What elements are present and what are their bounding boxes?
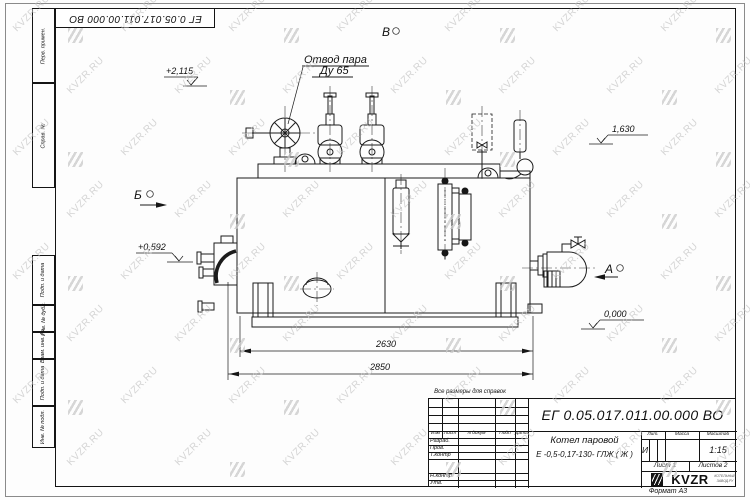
product-name-line2: Е -0,5-0,17-130- ГЛЖ ( Ж )	[528, 448, 641, 461]
reference-note: Все размеры для справок	[425, 389, 515, 395]
kvzr-logo-icon	[651, 473, 663, 486]
sheet-cell: Лист 1	[641, 461, 689, 471]
margin-box-label: Подп. и дата	[41, 365, 47, 399]
scale-label: Масштаб	[699, 432, 737, 439]
margin-box-vzam-inv: Взам. инв. №	[32, 332, 55, 359]
lit-value: И	[641, 440, 649, 460]
row-prov: Пров.	[430, 446, 458, 452]
col-data: Дата	[515, 431, 528, 438]
row-nkontr: Н.контр	[430, 474, 458, 480]
sheets-cell: Листов 2	[689, 461, 737, 471]
title-block: Изм Лист N докум Подп Дата Разраб. Пров.…	[428, 398, 736, 487]
margin-box-perv-primen: Перв. примен.	[32, 8, 55, 83]
row-razrab: Разраб.	[430, 439, 458, 445]
margin-box-podp-data-2: Подп. и дата	[32, 359, 55, 406]
col-izm: Изм	[429, 431, 442, 438]
kvzr-logo-text: KVZR	[665, 471, 715, 487]
row-utv: Утв.	[430, 481, 458, 487]
margin-box-label: Взам. инв. №	[41, 328, 47, 362]
format-label: Формат А3	[618, 488, 718, 495]
margin-box-inv-podl: Инв. № подл.	[32, 406, 55, 448]
col-ndokum: N докум	[458, 431, 495, 438]
margin-box-label: Перв. примен.	[41, 27, 47, 64]
margin-box-inv-dubl: Инв. № дубл.	[32, 305, 55, 332]
margin-box-sprav-no: Справ. №	[32, 83, 55, 188]
margin-box-podp-data-1: Подп. и дата	[32, 255, 55, 305]
product-name-line1: Котел паровой	[528, 433, 641, 448]
col-podp: Подп	[495, 431, 515, 438]
mass-label: Масса	[665, 432, 699, 439]
drawing-sheet: { "page": { "doc_number_top": "ЕГ 0.05.0…	[0, 0, 750, 500]
row-tkontr: Т.контр	[430, 453, 458, 459]
margin-box-label: Подп. и дата	[41, 263, 47, 297]
margin-box-label: Инв. № подл.	[41, 410, 47, 444]
title-block-doc-number: ЕГ 0.05.017.011.00.000 ВО	[528, 399, 737, 431]
lit-label: Лит.	[641, 432, 665, 439]
doc-number-box-top: ЕГ 0.05.017.011.00.000 ВО	[55, 8, 215, 28]
doc-number-top-text: ЕГ 0.05.017.011.00.000 ВО	[69, 13, 202, 24]
scale-value: 1:15	[699, 440, 737, 460]
logo-caption-line2: ЗАВОД.РУ	[714, 479, 736, 484]
margin-box-label: Справ. №	[41, 123, 47, 148]
col-list: Лист	[442, 431, 458, 438]
